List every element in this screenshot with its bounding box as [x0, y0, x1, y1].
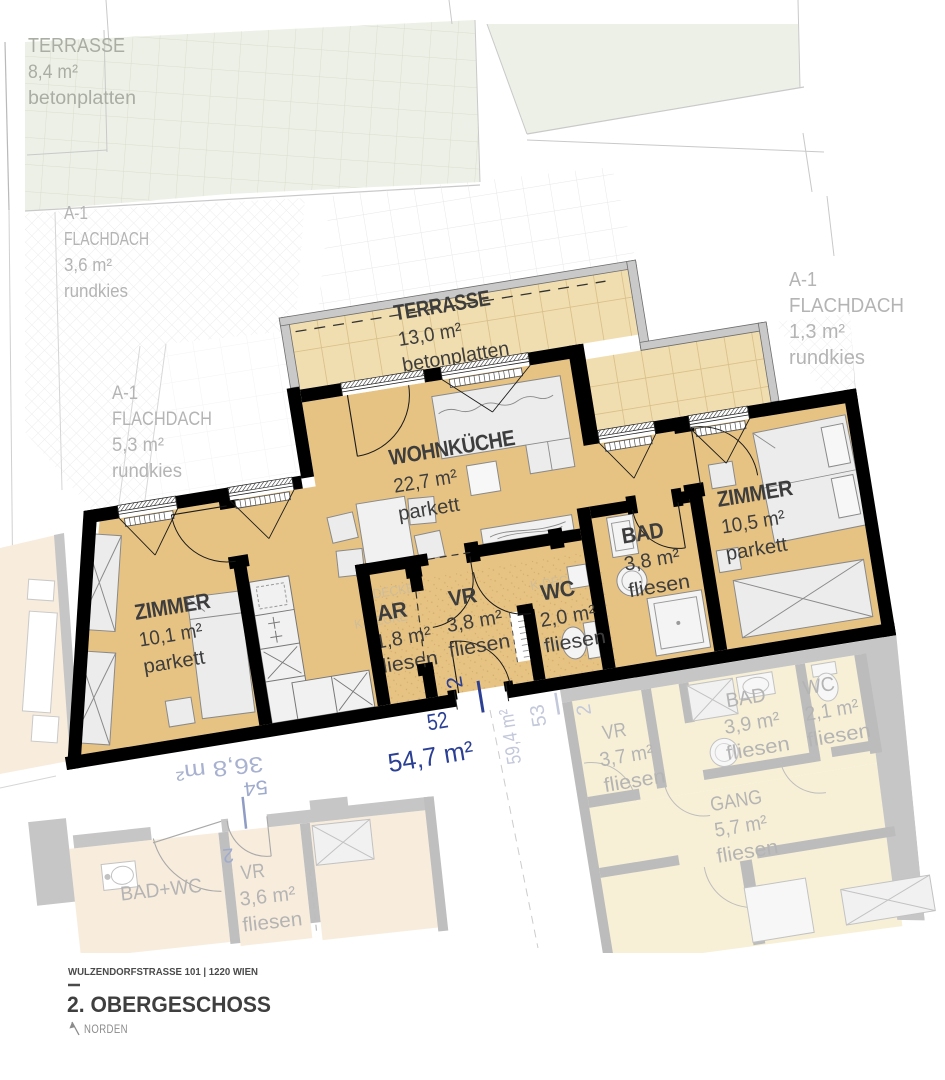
svg-text:TERRASSE: TERRASSE	[28, 35, 125, 57]
svg-text:A-1: A-1	[64, 203, 88, 223]
svg-text:5,3 m²: 5,3 m²	[112, 435, 164, 456]
svg-text:rundkies: rundkies	[64, 281, 128, 301]
svg-text:FLACHDACH: FLACHDACH	[789, 295, 904, 317]
svg-text:FLACHDACH: FLACHDACH	[112, 409, 212, 430]
svg-text:8,4 m²: 8,4 m²	[28, 62, 78, 83]
svg-text:VR: VR	[601, 719, 628, 745]
svg-text:betonplatten: betonplatten	[28, 88, 136, 109]
svg-text:rundkies: rundkies	[112, 461, 182, 482]
svg-text:VR: VR	[446, 582, 478, 611]
svg-text:WULZENDORFSTRASSE 101 | 1220 W: WULZENDORFSTRASSE 101 | 1220 WIEN	[68, 966, 258, 978]
svg-text:54: 54	[243, 775, 269, 799]
svg-text:53: 53	[526, 703, 551, 728]
svg-text:NORDEN: NORDEN	[84, 1024, 128, 1036]
svg-text:1,3 m²: 1,3 m²	[789, 321, 845, 343]
svg-text:52: 52	[425, 706, 450, 735]
svg-text:A-1: A-1	[789, 269, 817, 291]
svg-text:2. OBERGESCHOSS: 2. OBERGESCHOSS	[67, 992, 271, 1017]
svg-text:3,6 m²: 3,6 m²	[64, 255, 112, 275]
svg-text:2: 2	[222, 843, 235, 866]
svg-text:FLACHDACH: FLACHDACH	[64, 229, 149, 249]
svg-text:rundkies: rundkies	[789, 347, 865, 369]
svg-text:VR: VR	[240, 860, 266, 884]
svg-text:A-1: A-1	[112, 383, 138, 404]
svg-text:AR: AR	[375, 596, 409, 626]
